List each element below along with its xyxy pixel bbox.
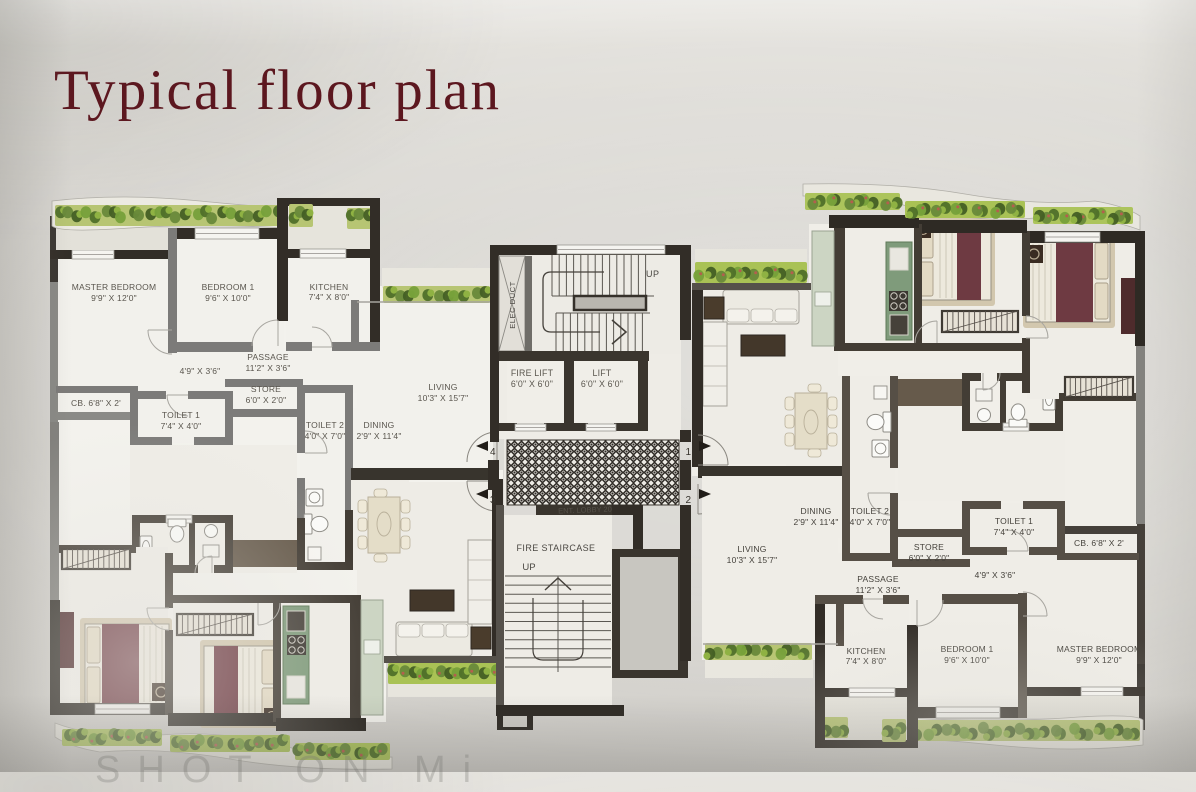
svg-text:3: 3	[490, 495, 496, 506]
svg-text:LIVING: LIVING	[428, 382, 457, 392]
svg-text:6'0" X 6'0": 6'0" X 6'0"	[511, 379, 553, 389]
svg-text:BEDROOM 1: BEDROOM 1	[202, 282, 255, 292]
svg-text:9'6" X 10'0": 9'6" X 10'0"	[205, 293, 251, 303]
svg-text:4: 4	[490, 447, 496, 458]
svg-text:10'3" X 15'7": 10'3" X 15'7"	[727, 555, 778, 565]
svg-text:MASTER BEDROOM: MASTER BEDROOM	[72, 282, 157, 292]
svg-text:2: 2	[685, 495, 691, 506]
svg-text:PASSAGE: PASSAGE	[247, 352, 289, 362]
svg-text:UP: UP	[646, 269, 660, 279]
svg-text:UP: UP	[522, 562, 535, 573]
svg-text:STORE: STORE	[914, 542, 944, 552]
svg-text:TOILET 1: TOILET 1	[995, 516, 1033, 526]
svg-text:FIRE STAIRCASE: FIRE STAIRCASE	[517, 543, 596, 553]
svg-text:TOILET 2: TOILET 2	[851, 506, 889, 516]
svg-text:4'0" X 7'0": 4'0" X 7'0"	[850, 517, 891, 527]
svg-text:ELEC DUCT: ELEC DUCT	[508, 281, 517, 329]
svg-text:1: 1	[685, 447, 691, 458]
svg-text:6'0" X 2'0": 6'0" X 2'0"	[909, 553, 950, 563]
svg-text:7'4" X 8'0": 7'4" X 8'0"	[309, 292, 350, 302]
svg-text:LIFT: LIFT	[593, 368, 612, 378]
svg-text:4'9" X 3'6": 4'9" X 3'6"	[975, 570, 1016, 580]
svg-text:6'0" X 6'0": 6'0" X 6'0"	[581, 379, 623, 389]
svg-text:4'9" X 3'6": 4'9" X 3'6"	[180, 366, 221, 376]
svg-text:FIRE LIFT: FIRE LIFT	[511, 368, 554, 378]
svg-text:PASSAGE: PASSAGE	[857, 574, 899, 584]
svg-text:KITCHEN: KITCHEN	[310, 282, 349, 292]
svg-text:DINING: DINING	[801, 506, 832, 516]
svg-text:11'2" X 3'6": 11'2" X 3'6"	[245, 363, 290, 373]
svg-text:7'4" X 4'0": 7'4" X 4'0"	[994, 527, 1035, 537]
svg-text:CB. 6'8" X 2': CB. 6'8" X 2'	[1074, 538, 1124, 548]
svg-text:9'9" X 12'0": 9'9" X 12'0"	[91, 293, 137, 303]
svg-text:2'9" X 11'4": 2'9" X 11'4"	[793, 517, 838, 527]
svg-text:LIVING: LIVING	[737, 544, 766, 554]
